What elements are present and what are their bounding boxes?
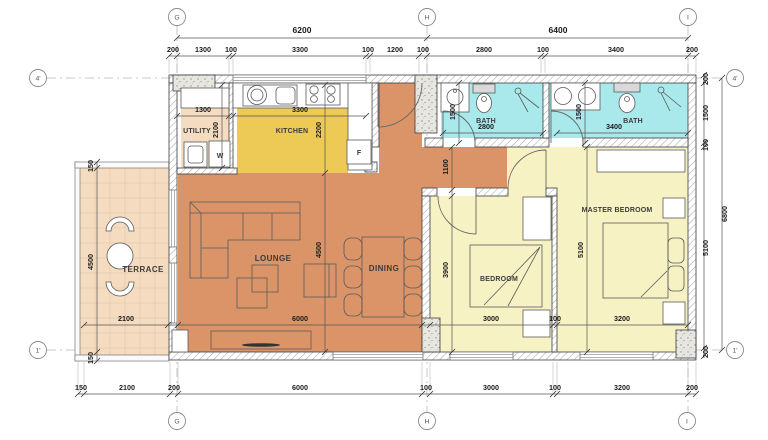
dimension-label: 2800 [476,45,492,54]
dimension-label: 5100 [701,240,710,256]
dimension-label: 200 [701,346,710,358]
bedroom-dresser [523,310,550,337]
dimension-label: 1300 [195,105,211,114]
dimension-label: 100 [549,314,561,323]
grid-bubble-label: 4' [35,75,40,82]
room-label: DINING [369,264,399,273]
master-wardrobe [597,150,685,172]
grid-bubble-label: H [425,418,430,425]
dimension-label: 3200 [614,314,630,323]
dimension-label: 3400 [608,45,624,54]
dimension-label: 150 [86,160,95,172]
dimension-label: 200 [168,383,180,392]
dimension-label: 200 [686,383,698,392]
grid-bubble-label: G [174,418,179,425]
dimension-label: 1500 [701,105,710,121]
wall-pier [172,330,188,352]
room-label: MASTER BEDROOM [582,207,653,214]
dimension-label: 1500 [448,104,457,120]
dimension-label: 6800 [720,206,729,222]
bath1-cistern [473,84,495,93]
dining-window [333,352,423,360]
dimension-label: 3000 [483,383,499,392]
kitchen-window [233,75,366,83]
grid-bubble-label: 4' [732,75,737,82]
bath2-cistern [614,83,640,92]
bedroom-wardrobe [523,197,551,240]
dimension-label: 3300 [292,105,308,114]
room-floor-corridor [422,147,507,188]
grid-bubble-label: 1' [732,347,737,354]
dimension-label: 6000 [292,314,308,323]
room-label: TERRACE [122,265,164,274]
floor-plan-canvas: GHIGHI4'1'4'1' 6200640020013001003300100… [0,0,768,440]
dimension-label: 1200 [387,45,403,54]
room-label: LOUNGE [255,254,292,263]
dimension-label: 100 [417,45,429,54]
grid-bubble-label: I [687,14,689,21]
dimension-label: 3900 [441,262,450,278]
master-nightstand [663,302,685,324]
dimension-label: 6400 [549,25,568,35]
dimension-label: 150 [86,352,95,364]
dimension-label: 3200 [614,383,630,392]
dimension-label: 6200 [293,25,312,35]
grid-bubble-label: I [686,418,688,425]
dimension-label: 200 [167,45,179,54]
dimension-label: 200 [701,73,710,85]
dimension-label: 2100 [118,314,134,323]
master-cabinet [663,198,685,218]
dimension-label: 3400 [606,122,622,131]
dimension-label: 4500 [86,254,95,270]
tv [242,343,280,347]
dimension-label: 1100 [441,159,450,175]
bedroom-window [450,352,513,360]
dimension-label: 2200 [314,122,323,138]
room-label: W [217,153,224,160]
room-floor-kitchen [237,108,348,173]
room-label: BEDROOM [480,276,518,283]
room-label: BATH [623,118,643,125]
grid-bubble-label: H [425,14,430,21]
dimension-label: 150 [75,383,87,392]
dimension-label: 1500 [574,104,583,120]
floor-plan-page: GHIGHI4'1'4'1' 6200640020013001003300100… [0,0,768,440]
dimension-label: 200 [686,45,698,54]
dimension-label: 6000 [292,383,308,392]
dimension-label: 4500 [314,242,323,258]
dimension-label: 100 [362,45,374,54]
grid-bubble-label: 1' [35,347,40,354]
dimension-label: 1300 [195,45,211,54]
room-label: F [357,150,362,157]
dimension-label: 100 [549,383,561,392]
dimension-label: 100 [420,383,432,392]
dimension-label: 3300 [292,45,308,54]
dimension-label: 100 [701,139,710,151]
room-label: KITCHEN [276,128,309,135]
dimension-label: 2100 [119,383,135,392]
terrace-door-glass-2 [169,263,177,323]
dimension-label: 100 [225,45,237,54]
dimension-label: 3000 [483,314,499,323]
dimension-label: 2100 [211,122,220,138]
grid-bubble-label: G [174,14,179,21]
room-label: BATH [476,118,496,125]
terrace-door-glass-1 [169,190,177,247]
dimension-label: 100 [537,45,549,54]
dimension-label: 5100 [576,242,585,258]
master-window [580,352,653,360]
room-label: UTILITY [183,128,211,135]
